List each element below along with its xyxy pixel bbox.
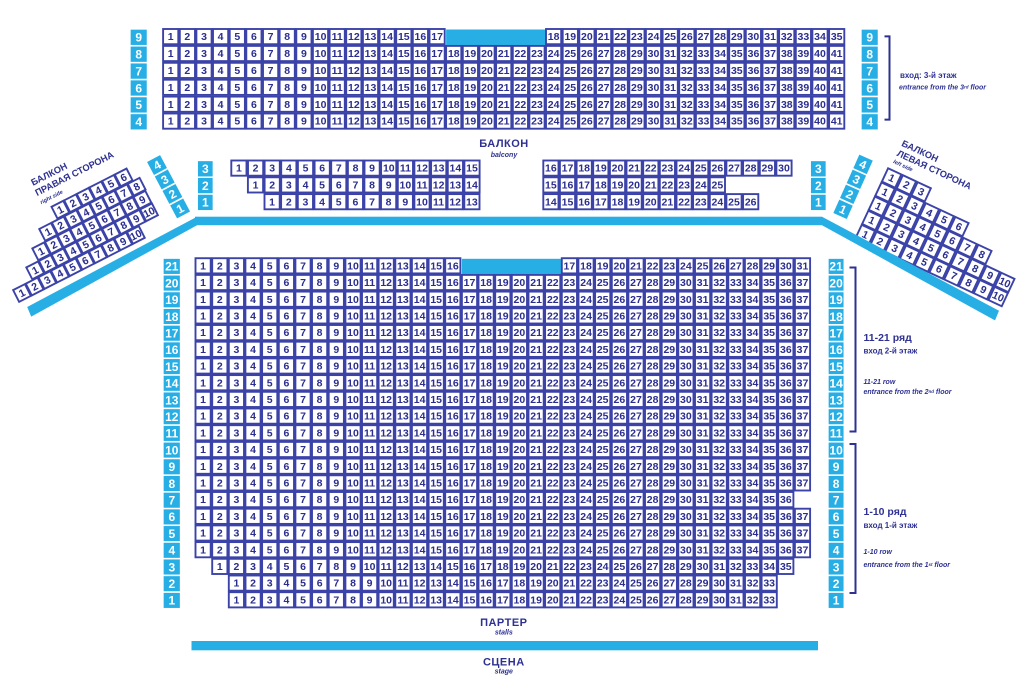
svg-text:23: 23 [564, 327, 576, 339]
svg-text:9: 9 [333, 327, 339, 339]
svg-text:17: 17 [464, 461, 476, 473]
svg-text:14: 14 [414, 544, 426, 556]
svg-text:1: 1 [253, 180, 259, 192]
svg-text:18: 18 [480, 377, 492, 389]
svg-text:27: 27 [630, 277, 642, 289]
svg-text:4: 4 [81, 206, 92, 219]
svg-text:19: 19 [497, 478, 509, 490]
svg-text:34: 34 [763, 561, 775, 573]
svg-text:12: 12 [414, 594, 426, 606]
svg-text:1: 1 [880, 186, 891, 199]
svg-text:1: 1 [168, 594, 175, 608]
svg-text:18: 18 [497, 561, 509, 573]
svg-text:5: 5 [267, 377, 273, 389]
svg-text:23: 23 [564, 294, 576, 306]
svg-text:14: 14 [381, 48, 393, 60]
svg-text:28: 28 [647, 327, 659, 339]
svg-text:16: 16 [447, 277, 459, 289]
svg-text:17: 17 [562, 163, 574, 175]
svg-text:21: 21 [530, 311, 542, 323]
svg-text:34: 34 [747, 394, 759, 406]
svg-text:21: 21 [498, 65, 510, 77]
svg-text:32: 32 [713, 478, 725, 490]
svg-text:29: 29 [663, 444, 675, 456]
svg-text:23: 23 [695, 196, 707, 208]
svg-text:10: 10 [347, 544, 359, 556]
svg-text:6: 6 [283, 294, 289, 306]
svg-text:17: 17 [497, 578, 509, 590]
svg-text:25: 25 [564, 116, 576, 128]
svg-text:9: 9 [301, 116, 307, 128]
svg-text:20: 20 [514, 544, 526, 556]
svg-text:12: 12 [397, 561, 409, 573]
svg-text:33: 33 [698, 82, 710, 94]
svg-text:2: 2 [833, 577, 840, 591]
svg-text:1: 1 [200, 478, 206, 490]
svg-text:19: 19 [497, 377, 509, 389]
svg-text:11: 11 [332, 48, 343, 60]
svg-text:37: 37 [797, 344, 809, 356]
svg-text:32: 32 [681, 99, 693, 111]
svg-text:вход 2-й этаж: вход 2-й этаж [864, 347, 918, 356]
svg-text:1: 1 [43, 226, 54, 239]
svg-text:23: 23 [663, 260, 675, 272]
svg-text:38: 38 [781, 82, 793, 94]
svg-text:18: 18 [578, 163, 590, 175]
svg-text:18: 18 [480, 294, 492, 306]
svg-text:40: 40 [814, 65, 826, 77]
svg-text:5: 5 [234, 48, 240, 60]
svg-text:21: 21 [530, 478, 542, 490]
svg-text:22: 22 [645, 163, 657, 175]
svg-text:14: 14 [414, 444, 426, 456]
svg-text:1: 1 [168, 82, 174, 94]
svg-text:16: 16 [447, 327, 459, 339]
svg-text:25: 25 [597, 461, 609, 473]
svg-text:12: 12 [348, 82, 360, 94]
svg-text:5: 5 [303, 163, 309, 175]
svg-text:25: 25 [597, 528, 609, 540]
svg-text:2: 2 [68, 197, 79, 210]
svg-text:14: 14 [381, 82, 393, 94]
svg-text:17: 17 [464, 327, 476, 339]
svg-text:29: 29 [663, 294, 675, 306]
svg-text:15: 15 [165, 360, 179, 374]
svg-text:21: 21 [530, 344, 542, 356]
svg-text:2: 2 [217, 361, 223, 373]
svg-text:29: 29 [663, 361, 675, 373]
svg-text:2: 2 [217, 394, 223, 406]
svg-text:25: 25 [564, 99, 576, 111]
svg-text:8: 8 [350, 594, 356, 606]
svg-text:12: 12 [380, 327, 392, 339]
svg-text:2: 2 [184, 65, 190, 77]
svg-text:33: 33 [730, 311, 742, 323]
svg-text:6: 6 [283, 327, 289, 339]
svg-text:27: 27 [630, 444, 642, 456]
svg-text:33: 33 [747, 561, 759, 573]
svg-text:31: 31 [713, 561, 725, 573]
svg-text:6: 6 [352, 196, 358, 208]
svg-text:28: 28 [647, 494, 659, 506]
svg-text:1: 1 [168, 99, 174, 111]
svg-text:15: 15 [545, 180, 557, 192]
svg-text:1: 1 [886, 172, 897, 185]
svg-text:3: 3 [233, 427, 239, 439]
svg-text:28: 28 [614, 116, 626, 128]
svg-text:8: 8 [369, 180, 375, 192]
svg-text:15: 15 [562, 196, 574, 208]
svg-text:32: 32 [713, 344, 725, 356]
svg-text:11: 11 [364, 511, 375, 523]
svg-text:3: 3 [233, 444, 239, 456]
svg-text:37: 37 [764, 116, 776, 128]
svg-text:23: 23 [564, 461, 576, 473]
svg-text:22: 22 [547, 478, 559, 490]
svg-text:23: 23 [564, 444, 576, 456]
svg-text:21: 21 [598, 31, 610, 43]
svg-text:31: 31 [664, 65, 676, 77]
svg-text:17: 17 [464, 444, 476, 456]
svg-text:8: 8 [106, 242, 117, 255]
svg-text:18: 18 [480, 427, 492, 439]
svg-text:19: 19 [497, 294, 509, 306]
svg-text:19: 19 [628, 196, 640, 208]
svg-text:37: 37 [797, 411, 809, 423]
svg-text:36: 36 [780, 327, 792, 339]
svg-text:9: 9 [333, 494, 339, 506]
svg-text:30: 30 [680, 511, 692, 523]
svg-text:31: 31 [697, 411, 709, 423]
svg-text:5: 5 [267, 427, 273, 439]
svg-text:27: 27 [630, 544, 642, 556]
svg-text:19: 19 [465, 99, 477, 111]
svg-text:4: 4 [250, 260, 256, 272]
svg-text:13: 13 [365, 48, 377, 60]
svg-text:2: 2 [184, 99, 190, 111]
svg-text:7: 7 [833, 494, 840, 508]
svg-text:36: 36 [780, 311, 792, 323]
svg-text:6: 6 [283, 344, 289, 356]
svg-text:6: 6 [251, 65, 257, 77]
svg-text:37: 37 [764, 99, 776, 111]
svg-text:29: 29 [631, 99, 643, 111]
svg-text:16: 16 [447, 394, 459, 406]
svg-text:6: 6 [168, 510, 175, 524]
svg-text:9: 9 [137, 194, 148, 207]
svg-text:6: 6 [99, 213, 110, 226]
svg-text:41: 41 [831, 65, 843, 77]
svg-text:3: 3 [55, 251, 66, 264]
svg-text:34: 34 [714, 48, 726, 60]
svg-text:4: 4 [218, 82, 224, 94]
svg-text:6: 6 [251, 48, 257, 60]
svg-text:5: 5 [267, 411, 273, 423]
svg-text:9: 9 [301, 48, 307, 60]
svg-text:28: 28 [647, 311, 659, 323]
svg-text:17: 17 [464, 311, 476, 323]
svg-text:6: 6 [283, 528, 289, 540]
svg-text:17: 17 [464, 544, 476, 556]
svg-text:5: 5 [267, 344, 273, 356]
svg-text:22: 22 [547, 394, 559, 406]
svg-text:entrance from the 1st floor: entrance from the 1st floor [864, 562, 952, 570]
svg-text:8: 8 [317, 344, 323, 356]
svg-text:14: 14 [414, 511, 426, 523]
svg-text:15: 15 [430, 528, 442, 540]
svg-text:8: 8 [284, 48, 290, 60]
svg-text:5: 5 [267, 444, 273, 456]
svg-text:9: 9 [333, 427, 339, 439]
svg-text:18: 18 [448, 116, 460, 128]
svg-text:35: 35 [763, 427, 775, 439]
svg-text:31: 31 [697, 528, 709, 540]
svg-text:19: 19 [597, 260, 609, 272]
svg-text:7: 7 [300, 311, 306, 323]
svg-text:36: 36 [780, 344, 792, 356]
svg-text:5: 5 [94, 200, 105, 213]
svg-text:19: 19 [497, 494, 509, 506]
svg-text:16: 16 [447, 377, 459, 389]
svg-text:5: 5 [919, 256, 930, 269]
svg-text:7: 7 [336, 163, 342, 175]
svg-text:4: 4 [250, 344, 256, 356]
svg-text:11: 11 [332, 82, 343, 94]
svg-text:13: 13 [449, 180, 461, 192]
svg-text:14: 14 [414, 427, 426, 439]
svg-text:4: 4 [218, 99, 224, 111]
svg-text:21: 21 [628, 163, 640, 175]
svg-text:9: 9 [350, 561, 356, 573]
svg-text:17: 17 [497, 594, 509, 606]
svg-text:20: 20 [514, 394, 526, 406]
svg-text:3: 3 [909, 200, 920, 213]
svg-text:32: 32 [747, 594, 759, 606]
svg-text:7: 7 [369, 196, 375, 208]
svg-text:28: 28 [647, 277, 659, 289]
svg-text:16: 16 [165, 343, 179, 357]
svg-text:20: 20 [628, 180, 640, 192]
svg-text:8: 8 [317, 528, 323, 540]
svg-text:3: 3 [233, 294, 239, 306]
svg-text:39: 39 [798, 116, 810, 128]
svg-text:8: 8 [119, 219, 130, 232]
svg-text:28: 28 [747, 260, 759, 272]
svg-text:28: 28 [614, 99, 626, 111]
svg-text:34: 34 [747, 444, 759, 456]
svg-text:1: 1 [233, 594, 239, 606]
svg-text:9: 9 [333, 461, 339, 473]
svg-text:24: 24 [548, 82, 560, 94]
svg-text:22: 22 [547, 327, 559, 339]
svg-text:20: 20 [829, 276, 843, 290]
svg-text:29: 29 [663, 311, 675, 323]
svg-text:12: 12 [348, 65, 360, 77]
svg-text:18: 18 [448, 82, 460, 94]
svg-text:3: 3 [201, 116, 207, 128]
svg-text:2: 2 [217, 327, 223, 339]
svg-text:37: 37 [764, 82, 776, 94]
svg-text:2: 2 [202, 179, 209, 193]
svg-text:11: 11 [830, 427, 843, 441]
svg-text:11: 11 [364, 478, 375, 490]
svg-text:7: 7 [300, 294, 306, 306]
svg-text:15: 15 [430, 294, 442, 306]
svg-text:28: 28 [647, 461, 659, 473]
svg-text:entrance from the 3rd floor: entrance from the 3rd floor [899, 84, 987, 92]
svg-text:3: 3 [201, 99, 207, 111]
svg-text:3: 3 [916, 186, 927, 199]
svg-text:20: 20 [514, 511, 526, 523]
svg-text:23: 23 [564, 544, 576, 556]
svg-text:7: 7 [300, 377, 306, 389]
svg-text:36: 36 [780, 528, 792, 540]
svg-text:27: 27 [598, 48, 610, 60]
svg-text:1: 1 [168, 31, 174, 43]
svg-text:25: 25 [597, 311, 609, 323]
svg-text:26: 26 [614, 494, 626, 506]
svg-text:29: 29 [731, 31, 743, 43]
svg-text:14: 14 [545, 196, 557, 208]
svg-text:28: 28 [714, 31, 726, 43]
svg-text:34: 34 [747, 327, 759, 339]
svg-text:4: 4 [911, 235, 922, 248]
svg-text:19: 19 [829, 293, 843, 307]
svg-text:21: 21 [564, 578, 576, 590]
svg-text:27: 27 [598, 65, 610, 77]
svg-text:БАЛКОН: БАЛКОН [479, 138, 529, 150]
svg-text:32: 32 [713, 528, 725, 540]
svg-text:12: 12 [416, 163, 428, 175]
svg-text:4: 4 [250, 528, 256, 540]
svg-text:34: 34 [747, 411, 759, 423]
svg-text:23: 23 [564, 377, 576, 389]
svg-text:18: 18 [480, 344, 492, 356]
svg-text:24: 24 [580, 377, 592, 389]
svg-text:35: 35 [763, 478, 775, 490]
svg-text:25: 25 [695, 163, 707, 175]
svg-text:вход: 3-й этаж: вход: 3-й этаж [900, 71, 957, 80]
svg-text:9: 9 [301, 31, 307, 43]
svg-text:23: 23 [564, 494, 576, 506]
svg-text:11: 11 [364, 427, 375, 439]
svg-text:2: 2 [217, 461, 223, 473]
svg-text:8: 8 [284, 99, 290, 111]
svg-text:1: 1 [233, 578, 239, 590]
svg-text:32: 32 [713, 361, 725, 373]
svg-text:23: 23 [564, 427, 576, 439]
svg-text:35: 35 [763, 311, 775, 323]
svg-text:9: 9 [135, 31, 142, 45]
svg-text:15: 15 [430, 277, 442, 289]
svg-text:15: 15 [398, 82, 410, 94]
svg-text:33: 33 [698, 65, 710, 77]
svg-text:21: 21 [530, 427, 542, 439]
svg-text:9: 9 [333, 294, 339, 306]
svg-text:21: 21 [662, 196, 674, 208]
svg-text:30: 30 [778, 163, 790, 175]
svg-text:7: 7 [300, 511, 306, 523]
svg-text:28: 28 [647, 411, 659, 423]
svg-text:13: 13 [397, 344, 409, 356]
svg-text:4: 4 [286, 163, 292, 175]
svg-text:17: 17 [464, 478, 476, 490]
svg-text:26: 26 [614, 277, 626, 289]
svg-text:36: 36 [780, 478, 792, 490]
svg-text:6: 6 [317, 578, 323, 590]
svg-text:4: 4 [218, 116, 224, 128]
svg-text:5: 5 [300, 578, 306, 590]
svg-text:7: 7 [300, 478, 306, 490]
svg-text:36: 36 [780, 461, 792, 473]
svg-text:1: 1 [200, 294, 206, 306]
svg-text:5: 5 [267, 511, 273, 523]
svg-text:7: 7 [268, 116, 274, 128]
svg-text:27: 27 [630, 361, 642, 373]
svg-text:2: 2 [217, 544, 223, 556]
svg-text:27: 27 [630, 461, 642, 473]
svg-text:16: 16 [447, 544, 459, 556]
svg-text:6: 6 [319, 163, 325, 175]
svg-text:24: 24 [678, 163, 690, 175]
svg-text:9: 9 [333, 344, 339, 356]
svg-text:7: 7 [268, 65, 274, 77]
svg-text:20: 20 [514, 344, 526, 356]
svg-text:32: 32 [713, 494, 725, 506]
svg-text:36: 36 [748, 99, 760, 111]
svg-text:5: 5 [87, 219, 98, 232]
svg-text:8: 8 [350, 578, 356, 590]
svg-text:20: 20 [514, 528, 526, 540]
svg-text:5: 5 [267, 277, 273, 289]
svg-text:37: 37 [797, 277, 809, 289]
svg-text:7: 7 [168, 494, 175, 508]
svg-text:24: 24 [580, 544, 592, 556]
svg-text:10: 10 [347, 311, 359, 323]
svg-text:15: 15 [398, 116, 410, 128]
svg-text:36: 36 [780, 511, 792, 523]
svg-text:23: 23 [531, 48, 543, 60]
svg-text:23: 23 [564, 361, 576, 373]
svg-text:1: 1 [168, 48, 174, 60]
svg-text:24: 24 [580, 528, 592, 540]
svg-text:13: 13 [397, 494, 409, 506]
svg-text:19: 19 [497, 394, 509, 406]
svg-text:31: 31 [697, 478, 709, 490]
svg-text:6: 6 [953, 220, 964, 233]
svg-text:13: 13 [397, 394, 409, 406]
svg-text:11: 11 [364, 311, 375, 323]
svg-text:7: 7 [112, 206, 123, 219]
svg-text:18: 18 [480, 277, 492, 289]
svg-text:21: 21 [498, 99, 510, 111]
svg-text:20: 20 [514, 277, 526, 289]
svg-text:32: 32 [713, 511, 725, 523]
svg-text:23: 23 [580, 561, 592, 573]
svg-text:13: 13 [397, 544, 409, 556]
svg-text:33: 33 [730, 277, 742, 289]
svg-text:36: 36 [780, 361, 792, 373]
svg-text:10: 10 [347, 444, 359, 456]
svg-text:27: 27 [630, 394, 642, 406]
svg-text:9: 9 [369, 163, 375, 175]
svg-text:28: 28 [647, 294, 659, 306]
svg-text:5: 5 [234, 65, 240, 77]
svg-text:11: 11 [364, 344, 375, 356]
svg-text:22: 22 [515, 82, 527, 94]
svg-text:17: 17 [464, 377, 476, 389]
svg-text:25: 25 [712, 180, 724, 192]
